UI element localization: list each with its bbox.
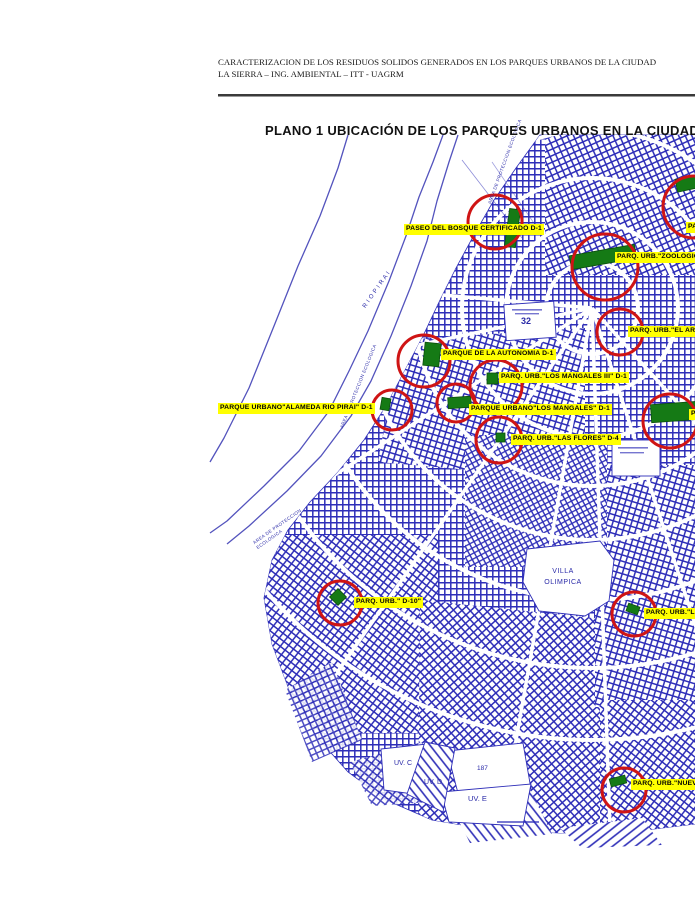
park-label-el-arenal: PARQ. URB."EL ARE [628,326,695,337]
park-label-autonomia: PARQUE DE LA AUTONOMIA D-1 [441,349,556,360]
park-label-nuevo-cut: PARQ. URB."NUEV [631,779,695,790]
park-area [448,396,472,409]
park-label-las-flores: PARQ. URB."LAS FLORES" D-4 [511,434,621,445]
document-page: CARACTERIZACION DE LOS RESIDUOS SOLIDOS … [0,0,695,900]
park-label-p-cut: P [689,409,695,420]
park-label-lo-cut: PARQ. URB."LO [644,608,695,619]
park-label-los-mangales-iii: PARQ. URB."LOS MANGALES III" D-1 [499,372,629,383]
park-label-los-mangales: PARQUE URBANO"LOS MANGALES" D-1 [469,404,612,415]
park-label-cut-top-right: PA [686,222,695,233]
park-area [496,433,505,442]
park-area [380,397,391,410]
park-label-d10: PARQ. URB." D-10" [354,597,423,608]
block-32-label: 32 [521,316,531,326]
park-area [487,373,498,384]
park-label-zoologico: PARQ. URB."ZOOLOGIC [615,252,695,263]
uv-187-label: 187 [477,765,488,772]
map-title: PLANO 1 UBICACIÓN DE LOS PARQUES URBANOS… [265,123,695,138]
park-label-paseo-del-bosque: PASEO DEL BOSQUE CERTIFICADO D-1 [404,224,544,235]
uv-c-label: UV. C [394,760,412,767]
uv-d-label: UV. D [424,779,442,786]
villa-olimpica-label: VILLA OLIMPICA [527,566,599,588]
park-area [423,342,441,367]
uv-e-label: UV. E [468,794,487,803]
park-label-alameda-rio-pirai: PARQUE URBANO"ALAMEDA RIO PIRAI" D-1 [218,403,375,414]
